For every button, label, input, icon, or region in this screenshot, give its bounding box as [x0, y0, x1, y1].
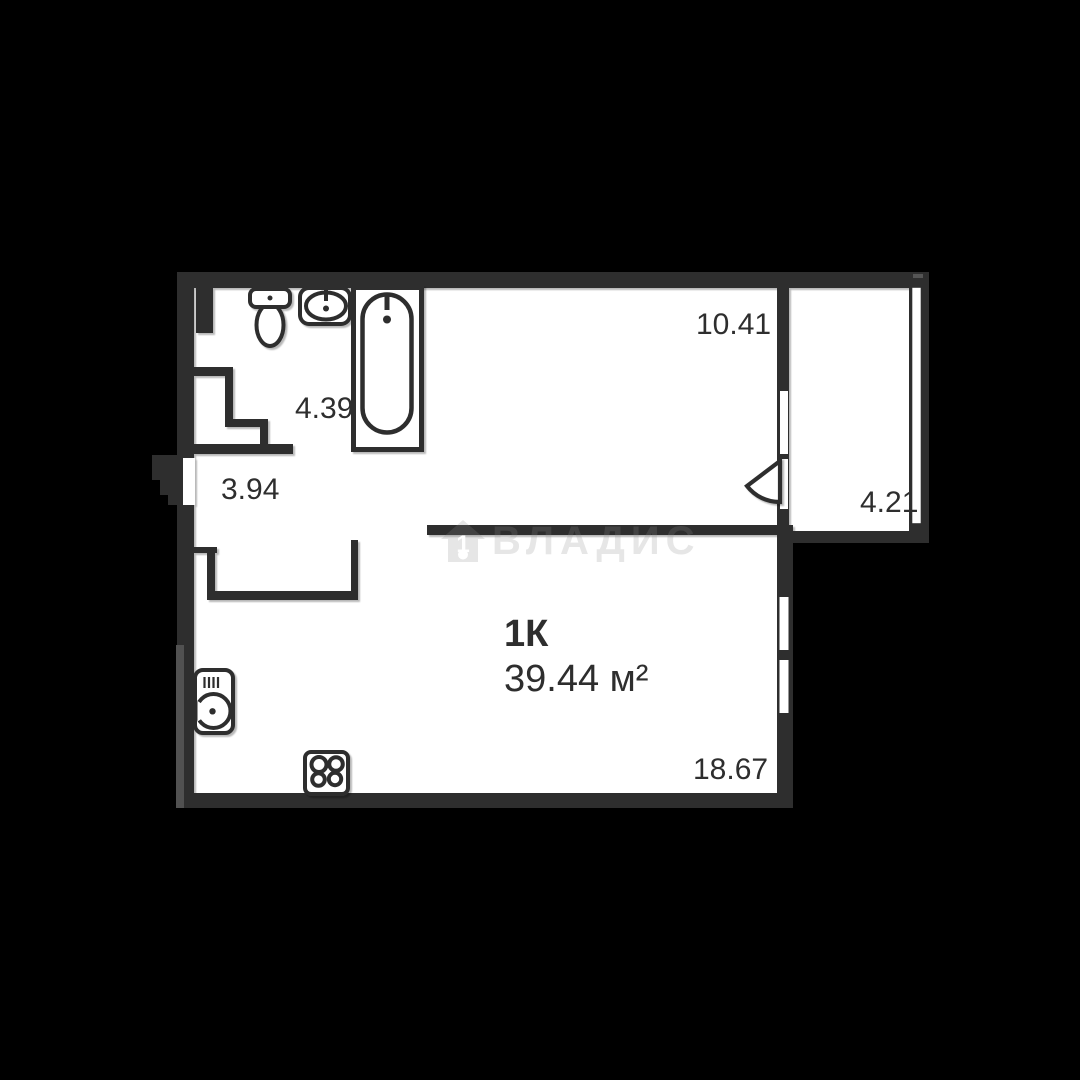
entry-step-1	[152, 455, 178, 480]
area-label-balcony: 4.21	[860, 488, 918, 518]
washer-drum-dot	[209, 708, 215, 714]
balcony-wall-notch	[913, 274, 923, 278]
wall-kitchen-vert-right	[351, 540, 358, 600]
floor-plan-svg	[0, 0, 1080, 1080]
unit-room-count-label: 1К	[504, 615, 548, 653]
left-wall-shade	[176, 645, 184, 808]
area-label-bathroom: 4.39	[295, 394, 353, 424]
bathtub-drain	[383, 316, 391, 324]
unit-total-area-label: 39.44 м²	[504, 660, 648, 698]
sink-icon	[300, 288, 350, 324]
balcony-window-slit	[780, 391, 788, 454]
wall-step-v1	[225, 367, 233, 427]
wall-kitchen-vert-left	[207, 547, 215, 593]
entry-step-2	[160, 480, 178, 495]
wall-wc-stub	[196, 286, 213, 333]
stove-burner-3	[312, 773, 325, 786]
area-label-living-room: 18.67	[693, 755, 768, 785]
area-label-top-room: 10.41	[696, 310, 771, 340]
toilet-button	[268, 296, 273, 301]
wall-balcony-bottom	[777, 531, 929, 543]
apartment-floor	[184, 280, 784, 800]
bathtub-icon	[354, 288, 422, 450]
entry-door-opening	[183, 458, 195, 505]
stove-burner-1	[312, 757, 327, 772]
wall-top	[177, 272, 929, 288]
stove-burner-2	[329, 757, 343, 771]
sink-drain	[323, 306, 329, 312]
wall-middle	[427, 525, 777, 535]
floor-plan-canvas: 10.41 4.39 3.94 4.21 18.67 1К 39.44 м² 1…	[0, 0, 1080, 1080]
entry-step-3	[168, 495, 178, 505]
washing-machine-icon	[195, 670, 233, 733]
wall-bottom	[177, 793, 793, 808]
wall-kitchen-bottom	[207, 591, 358, 600]
bathtub-tub	[363, 295, 412, 433]
stove-icon	[305, 752, 348, 794]
window-2	[780, 660, 789, 713]
wall-bath-bottom	[193, 444, 293, 454]
area-label-hallway: 3.94	[221, 475, 279, 505]
toilet-bowl	[257, 304, 284, 346]
window-1	[780, 597, 789, 650]
stove-burner-4	[329, 773, 341, 785]
